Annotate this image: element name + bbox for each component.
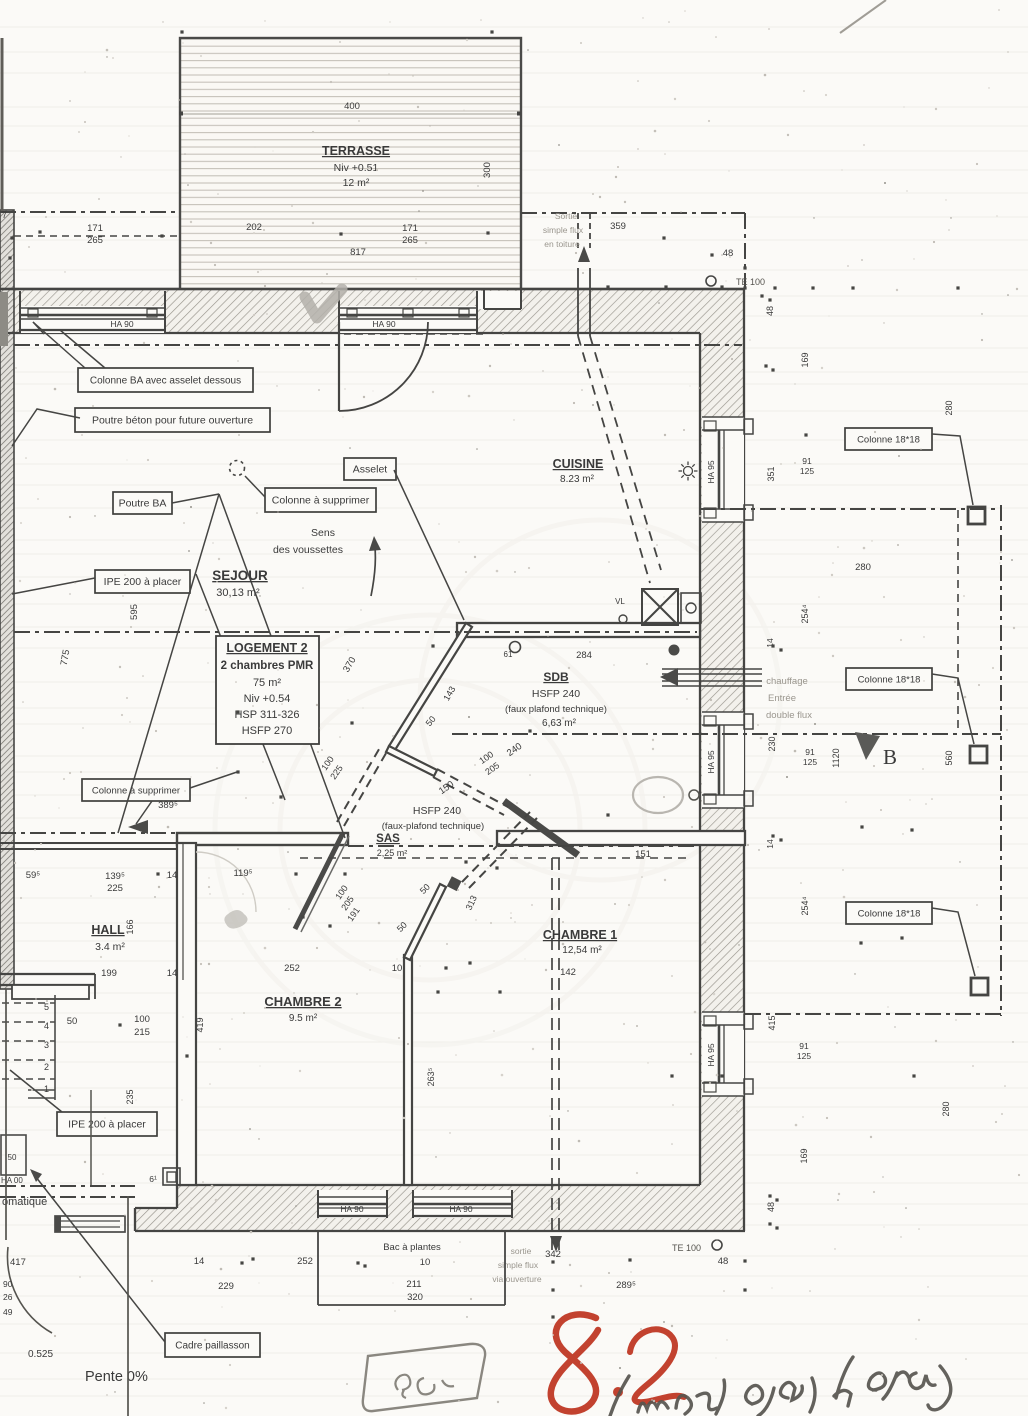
svg-text:125: 125 [800, 466, 814, 476]
svg-text:LOGEMENT 2: LOGEMENT 2 [226, 641, 307, 655]
svg-text:91: 91 [802, 456, 812, 466]
svg-text:225: 225 [107, 883, 123, 894]
svg-text:215: 215 [134, 1027, 150, 1038]
svg-text:49: 49 [3, 1307, 13, 1317]
svg-text:HALL: HALL [91, 923, 125, 937]
svg-text:199: 199 [101, 968, 117, 979]
svg-text:(faux plafond technique): (faux plafond technique) [505, 704, 607, 715]
svg-text:en toiture: en toiture [544, 239, 580, 249]
svg-text:HSFP 270: HSFP 270 [242, 725, 293, 737]
svg-text:2: 2 [44, 1062, 49, 1072]
svg-text:263⁵: 263⁵ [426, 1067, 436, 1086]
svg-text:61: 61 [504, 650, 513, 659]
svg-text:48: 48 [723, 248, 734, 259]
svg-text:omatique: omatique [2, 1196, 47, 1208]
svg-text:50: 50 [8, 1153, 17, 1162]
svg-text:595: 595 [129, 604, 140, 620]
svg-text:400: 400 [344, 101, 360, 112]
svg-text:HA 90: HA 90 [372, 319, 395, 329]
svg-text:HA 00: HA 00 [1, 1176, 23, 1185]
svg-text:254⁴: 254⁴ [800, 896, 810, 915]
svg-text:3.4 m²: 3.4 m² [95, 941, 125, 953]
svg-text:1: 1 [44, 1084, 49, 1094]
svg-text:6¹: 6¹ [149, 1174, 157, 1184]
svg-text:1120: 1120 [831, 748, 841, 767]
svg-text:48: 48 [718, 1256, 729, 1267]
svg-text:via ouverture: via ouverture [492, 1274, 541, 1284]
svg-text:59⁵: 59⁵ [26, 870, 41, 881]
svg-text:(faux-plafond technique): (faux-plafond technique) [382, 821, 484, 832]
svg-text:125: 125 [803, 757, 817, 767]
svg-text:5: 5 [44, 1002, 49, 1012]
svg-text:Entrée: Entrée [768, 693, 796, 704]
svg-text:119⁵: 119⁵ [233, 868, 252, 879]
svg-text:30,13 m²: 30,13 m² [216, 587, 260, 599]
svg-text:HA 90: HA 90 [340, 1204, 363, 1214]
svg-text:Asselet: Asselet [353, 464, 388, 476]
svg-text:100: 100 [134, 1014, 150, 1025]
svg-text:12 m²: 12 m² [343, 177, 370, 189]
svg-text:chauffage: chauffage [766, 676, 808, 687]
svg-text:265: 265 [402, 235, 418, 246]
svg-text:125: 125 [797, 1051, 811, 1061]
svg-text:171: 171 [402, 223, 418, 234]
svg-text:Colonne 18*18: Colonne 18*18 [858, 908, 921, 919]
svg-text:320: 320 [407, 1292, 423, 1303]
svg-text:359: 359 [610, 221, 626, 232]
svg-text:Poutre BA: Poutre BA [119, 498, 167, 510]
svg-text:Colonne à supprimer: Colonne à supprimer [272, 495, 370, 507]
svg-text:9.5 m²: 9.5 m² [289, 1013, 318, 1024]
svg-text:Colonne 18*18: Colonne 18*18 [857, 434, 920, 445]
svg-text:169: 169 [800, 352, 810, 367]
svg-text:Sortie: Sortie [555, 211, 577, 221]
svg-text:14: 14 [765, 839, 775, 849]
svg-text:CUISINE: CUISINE [553, 457, 604, 471]
svg-text:HSFP 240: HSFP 240 [532, 688, 580, 700]
svg-text:Pente 0%: Pente 0% [85, 1369, 148, 1385]
svg-text:HA 95: HA 95 [706, 1043, 716, 1066]
svg-text:351: 351 [766, 466, 776, 481]
svg-text:171: 171 [87, 223, 103, 234]
svg-text:Cadre paillasson: Cadre paillasson [175, 1341, 250, 1352]
svg-text:IPE 200 à placer: IPE 200 à placer [104, 576, 182, 588]
svg-text:12,54 m²: 12,54 m² [562, 945, 602, 956]
svg-text:TE 100: TE 100 [672, 1243, 701, 1253]
svg-text:VL: VL [615, 597, 625, 606]
svg-text:HSP 311-326: HSP 311-326 [234, 709, 299, 721]
svg-text:252: 252 [297, 1256, 313, 1267]
svg-text:415: 415 [767, 1015, 777, 1030]
svg-text:sortie: sortie [511, 1246, 532, 1256]
svg-text:166: 166 [125, 919, 135, 934]
svg-text:284: 284 [576, 650, 592, 661]
svg-text:142: 142 [560, 967, 576, 978]
svg-text:4: 4 [44, 1021, 49, 1031]
svg-text:2,25 m²: 2,25 m² [377, 848, 408, 858]
svg-text:Bac à plantes: Bac à plantes [383, 1242, 441, 1253]
svg-text:300: 300 [482, 162, 493, 178]
svg-text:Colonne 18*18: Colonne 18*18 [858, 674, 921, 685]
svg-text:Sens: Sens [311, 527, 335, 539]
svg-text:2 chambres PMR: 2 chambres PMR [221, 660, 314, 672]
svg-text:simple flux: simple flux [498, 1260, 539, 1270]
svg-text:235: 235 [125, 1089, 135, 1104]
svg-text:50: 50 [67, 1016, 78, 1027]
svg-text:6,63 m²: 6,63 m² [542, 718, 577, 729]
svg-text:SEJOUR: SEJOUR [212, 568, 268, 583]
svg-text:SAS: SAS [376, 833, 400, 845]
svg-text:151: 151 [635, 849, 651, 860]
svg-text:419: 419 [195, 1017, 205, 1032]
svg-text:389⁵: 389⁵ [158, 800, 178, 811]
svg-text:Poutre béton pour future ouver: Poutre béton pour future ouverture [92, 415, 253, 427]
svg-text:91: 91 [805, 747, 815, 757]
svg-text:265: 265 [87, 235, 103, 246]
svg-text:26: 26 [3, 1292, 13, 1302]
svg-text:10: 10 [392, 963, 403, 974]
svg-text:342: 342 [545, 1249, 561, 1260]
svg-text:48: 48 [766, 1202, 776, 1212]
svg-text:417: 417 [10, 1257, 26, 1268]
svg-text:48: 48 [765, 306, 775, 316]
svg-text:simple flux: simple flux [543, 225, 584, 235]
svg-text:817: 817 [350, 247, 366, 258]
svg-text:Niv +0.54: Niv +0.54 [244, 693, 291, 705]
svg-text:280: 280 [941, 1101, 951, 1116]
svg-text:211: 211 [406, 1279, 421, 1290]
svg-text:229: 229 [218, 1281, 234, 1292]
svg-text:Colonne BA avec asselet dessou: Colonne BA avec asselet dessous [90, 376, 241, 387]
svg-text:252: 252 [284, 963, 300, 974]
svg-text:254⁴: 254⁴ [800, 604, 810, 623]
svg-text:91: 91 [799, 1041, 809, 1051]
svg-text:280: 280 [855, 562, 871, 573]
svg-text:IPE 200 à placer: IPE 200 à placer [68, 1119, 146, 1131]
svg-text:Colonne à supprimer: Colonne à supprimer [92, 785, 180, 796]
svg-text:169: 169 [799, 1148, 809, 1163]
svg-text:90: 90 [3, 1279, 13, 1289]
svg-text:0.525: 0.525 [28, 1349, 53, 1360]
svg-text:TE 100: TE 100 [736, 277, 765, 287]
svg-text:280: 280 [944, 400, 954, 415]
svg-text:B: B [883, 745, 897, 769]
svg-text:TERRASSE: TERRASSE [322, 144, 390, 158]
svg-text:3: 3 [44, 1040, 49, 1050]
svg-text:Niv +0.51: Niv +0.51 [334, 162, 379, 174]
svg-text:CHAMBRE 1: CHAMBRE 1 [543, 928, 617, 942]
svg-text:202: 202 [246, 222, 262, 233]
svg-text:8.23 m²: 8.23 m² [560, 474, 595, 485]
svg-text:HA 95: HA 95 [706, 460, 716, 483]
svg-text:139⁵: 139⁵ [105, 871, 125, 882]
svg-text:230: 230 [767, 736, 777, 751]
svg-text:CHAMBRE 2: CHAMBRE 2 [264, 994, 341, 1009]
svg-text:HSFP 240: HSFP 240 [413, 805, 461, 817]
svg-text:560: 560 [944, 750, 954, 765]
svg-text:14: 14 [167, 870, 178, 881]
svg-text:des voussettes: des voussettes [273, 544, 343, 556]
svg-text:SDB: SDB [543, 670, 569, 684]
svg-text:75 m²: 75 m² [253, 677, 281, 689]
svg-text:double flux: double flux [766, 710, 812, 721]
svg-text:HA 90: HA 90 [110, 319, 133, 329]
svg-text:7: 7 [2, 210, 7, 220]
svg-text:14: 14 [194, 1256, 205, 1267]
svg-text:14: 14 [167, 968, 178, 979]
svg-text:HA 95: HA 95 [706, 750, 716, 773]
svg-text:289⁵: 289⁵ [616, 1280, 636, 1291]
svg-text:HA 90: HA 90 [449, 1204, 472, 1214]
